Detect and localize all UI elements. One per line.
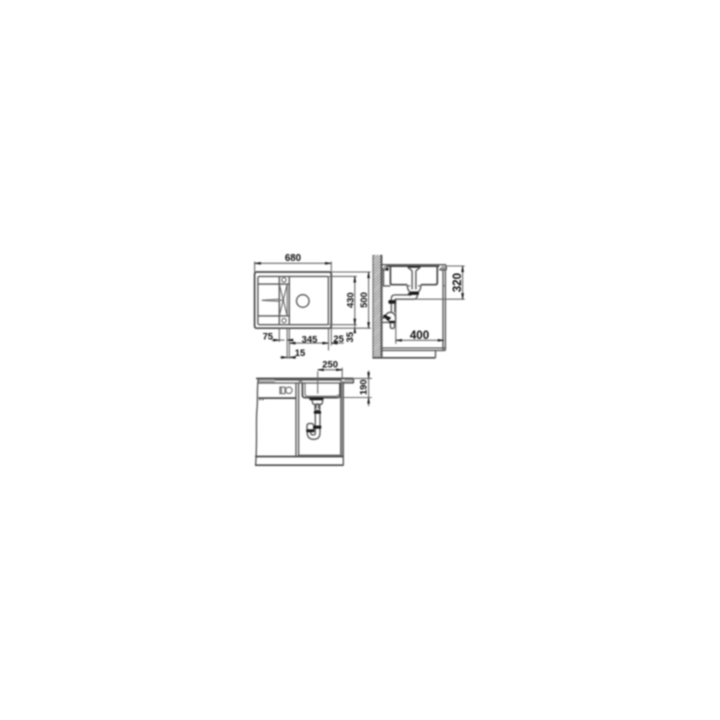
svg-text:250: 250 xyxy=(322,358,338,369)
svg-text:35: 35 xyxy=(344,332,355,342)
svg-text:500: 500 xyxy=(358,292,369,308)
svg-text:430: 430 xyxy=(344,292,355,308)
svg-text:75: 75 xyxy=(263,330,273,341)
svg-text:680: 680 xyxy=(285,253,301,264)
svg-text:15: 15 xyxy=(295,347,305,358)
svg-text:400: 400 xyxy=(410,329,429,342)
svg-text:345: 345 xyxy=(302,334,318,345)
svg-text:320: 320 xyxy=(451,273,464,292)
svg-text:190: 190 xyxy=(357,379,368,395)
svg-text:25: 25 xyxy=(333,333,343,344)
